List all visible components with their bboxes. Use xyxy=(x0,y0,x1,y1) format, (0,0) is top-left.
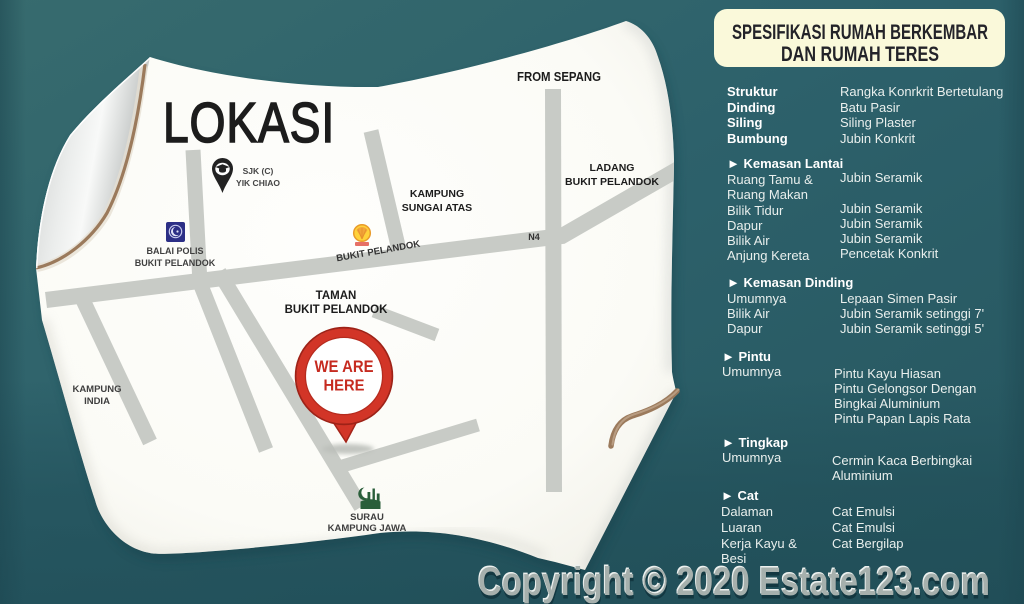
svg-text:Bilik Air: Bilik Air xyxy=(727,306,770,321)
svg-text:Jubin Seramik: Jubin Seramik xyxy=(840,201,923,216)
svg-text:Bilik Air: Bilik Air xyxy=(727,233,770,248)
svg-text:Bilik Tidur: Bilik Tidur xyxy=(727,203,784,218)
svg-text:Dapur: Dapur xyxy=(727,218,763,233)
svg-text:Dalaman: Dalaman xyxy=(721,504,773,519)
svg-text:Jubin Seramik setinggi 7': Jubin Seramik setinggi 7' xyxy=(840,306,984,321)
svg-text:N4: N4 xyxy=(528,232,540,242)
svg-text:YIK CHIAO: YIK CHIAO xyxy=(236,178,280,188)
svg-text:BALAI POLIS: BALAI POLIS xyxy=(146,246,203,256)
svg-text:Pintu Papan Lapis Rata: Pintu Papan Lapis Rata xyxy=(834,411,971,426)
svg-text:FROM SEPANG: FROM SEPANG xyxy=(517,70,601,84)
svg-text:Luaran: Luaran xyxy=(721,520,761,535)
svg-text:HERE: HERE xyxy=(324,378,365,395)
svg-text:DAN RUMAH TERES: DAN RUMAH TERES xyxy=(781,43,939,66)
svg-text:KAMPUNG: KAMPUNG xyxy=(410,188,464,200)
svg-text:Pintu Gelongsor Dengan: Pintu Gelongsor Dengan xyxy=(834,381,976,396)
svg-text:BUKIT PELANDOK: BUKIT PELANDOK xyxy=(285,304,389,316)
svg-text:► Kemasan Dinding: ► Kemasan Dinding xyxy=(727,275,853,290)
svg-text:Jubin Seramik: Jubin Seramik xyxy=(840,231,923,246)
svg-text:► Cat: ► Cat xyxy=(721,488,759,503)
svg-text:Dapur: Dapur xyxy=(727,321,763,336)
svg-text:Kerja Kayu &: Kerja Kayu & xyxy=(721,536,797,551)
svg-text:Ruang Makan: Ruang Makan xyxy=(727,187,808,202)
svg-text:► Kemasan Lantai: ► Kemasan Lantai xyxy=(727,156,843,171)
svg-text:Bumbung: Bumbung xyxy=(727,131,788,146)
svg-text:Siling Plaster: Siling Plaster xyxy=(840,115,917,130)
svg-text:LADANG: LADANG xyxy=(590,162,635,174)
svg-text:Jubin Konkrit: Jubin Konkrit xyxy=(840,131,916,146)
svg-text:SJK (C): SJK (C) xyxy=(243,166,274,176)
svg-text:Siling: Siling xyxy=(727,115,762,130)
svg-text:Lepaan Simen Pasir: Lepaan Simen Pasir xyxy=(840,291,958,306)
svg-text:Pintu Kayu Hiasan: Pintu Kayu Hiasan xyxy=(834,366,941,381)
svg-text:Umumnya: Umumnya xyxy=(722,364,782,379)
svg-text:Cat Bergilap: Cat Bergilap xyxy=(832,536,904,551)
svg-text:Pencetak Konkrit: Pencetak Konkrit xyxy=(840,246,939,261)
svg-text:Jubin Seramik: Jubin Seramik xyxy=(840,216,923,231)
svg-text:Cat Emulsi: Cat Emulsi xyxy=(832,504,895,519)
svg-text:SURAU: SURAU xyxy=(350,512,384,523)
svg-text:BUKIT PELANDOK: BUKIT PELANDOK xyxy=(565,176,659,188)
svg-text:SUNGAI ATAS: SUNGAI ATAS xyxy=(402,202,472,214)
svg-text:TAMAN: TAMAN xyxy=(316,290,357,302)
svg-text:Batu Pasir: Batu Pasir xyxy=(840,100,901,115)
svg-text:KAMPUNG: KAMPUNG xyxy=(72,384,121,395)
svg-text:Jubin Seramik: Jubin Seramik xyxy=(840,170,923,185)
svg-text:Anjung Kereta: Anjung Kereta xyxy=(727,248,810,263)
svg-text:WE ARE: WE ARE xyxy=(315,357,374,376)
svg-text:KAMPUNG JAWA: KAMPUNG JAWA xyxy=(328,523,407,534)
svg-text:Cermin Kaca Berbingkai: Cermin Kaca Berbingkai xyxy=(832,453,972,468)
svg-text:Ruang Tamu &: Ruang Tamu & xyxy=(727,172,813,187)
svg-text:Umumnya: Umumnya xyxy=(722,450,782,465)
svg-text:Struktur: Struktur xyxy=(727,84,778,99)
svg-text:Aluminium: Aluminium xyxy=(832,468,893,483)
svg-text:Jubin Seramik setinggi 5': Jubin Seramik setinggi 5' xyxy=(840,321,984,336)
svg-text:INDIA: INDIA xyxy=(84,396,110,407)
svg-text:► Pintu: ► Pintu xyxy=(722,349,771,364)
svg-text:Copyright © 2020 Estate123.com: Copyright © 2020 Estate123.com xyxy=(478,560,990,604)
svg-text:Bingkai Aluminium: Bingkai Aluminium xyxy=(834,396,940,411)
svg-text:SPESIFIKASI RUMAH BERKEMBAR: SPESIFIKASI RUMAH BERKEMBAR xyxy=(732,21,988,44)
svg-text:Rangka Konrkrit Bertetulang: Rangka Konrkrit Bertetulang xyxy=(840,84,1003,99)
svg-text:LOKASI: LOKASI xyxy=(163,91,335,155)
svg-text:► Tingkap: ► Tingkap xyxy=(722,435,788,450)
svg-text:Dinding: Dinding xyxy=(727,100,775,115)
svg-text:BUKIT PELANDOK: BUKIT PELANDOK xyxy=(135,258,216,268)
svg-text:Umumnya: Umumnya xyxy=(727,291,787,306)
svg-text:Cat Emulsi: Cat Emulsi xyxy=(832,520,895,535)
